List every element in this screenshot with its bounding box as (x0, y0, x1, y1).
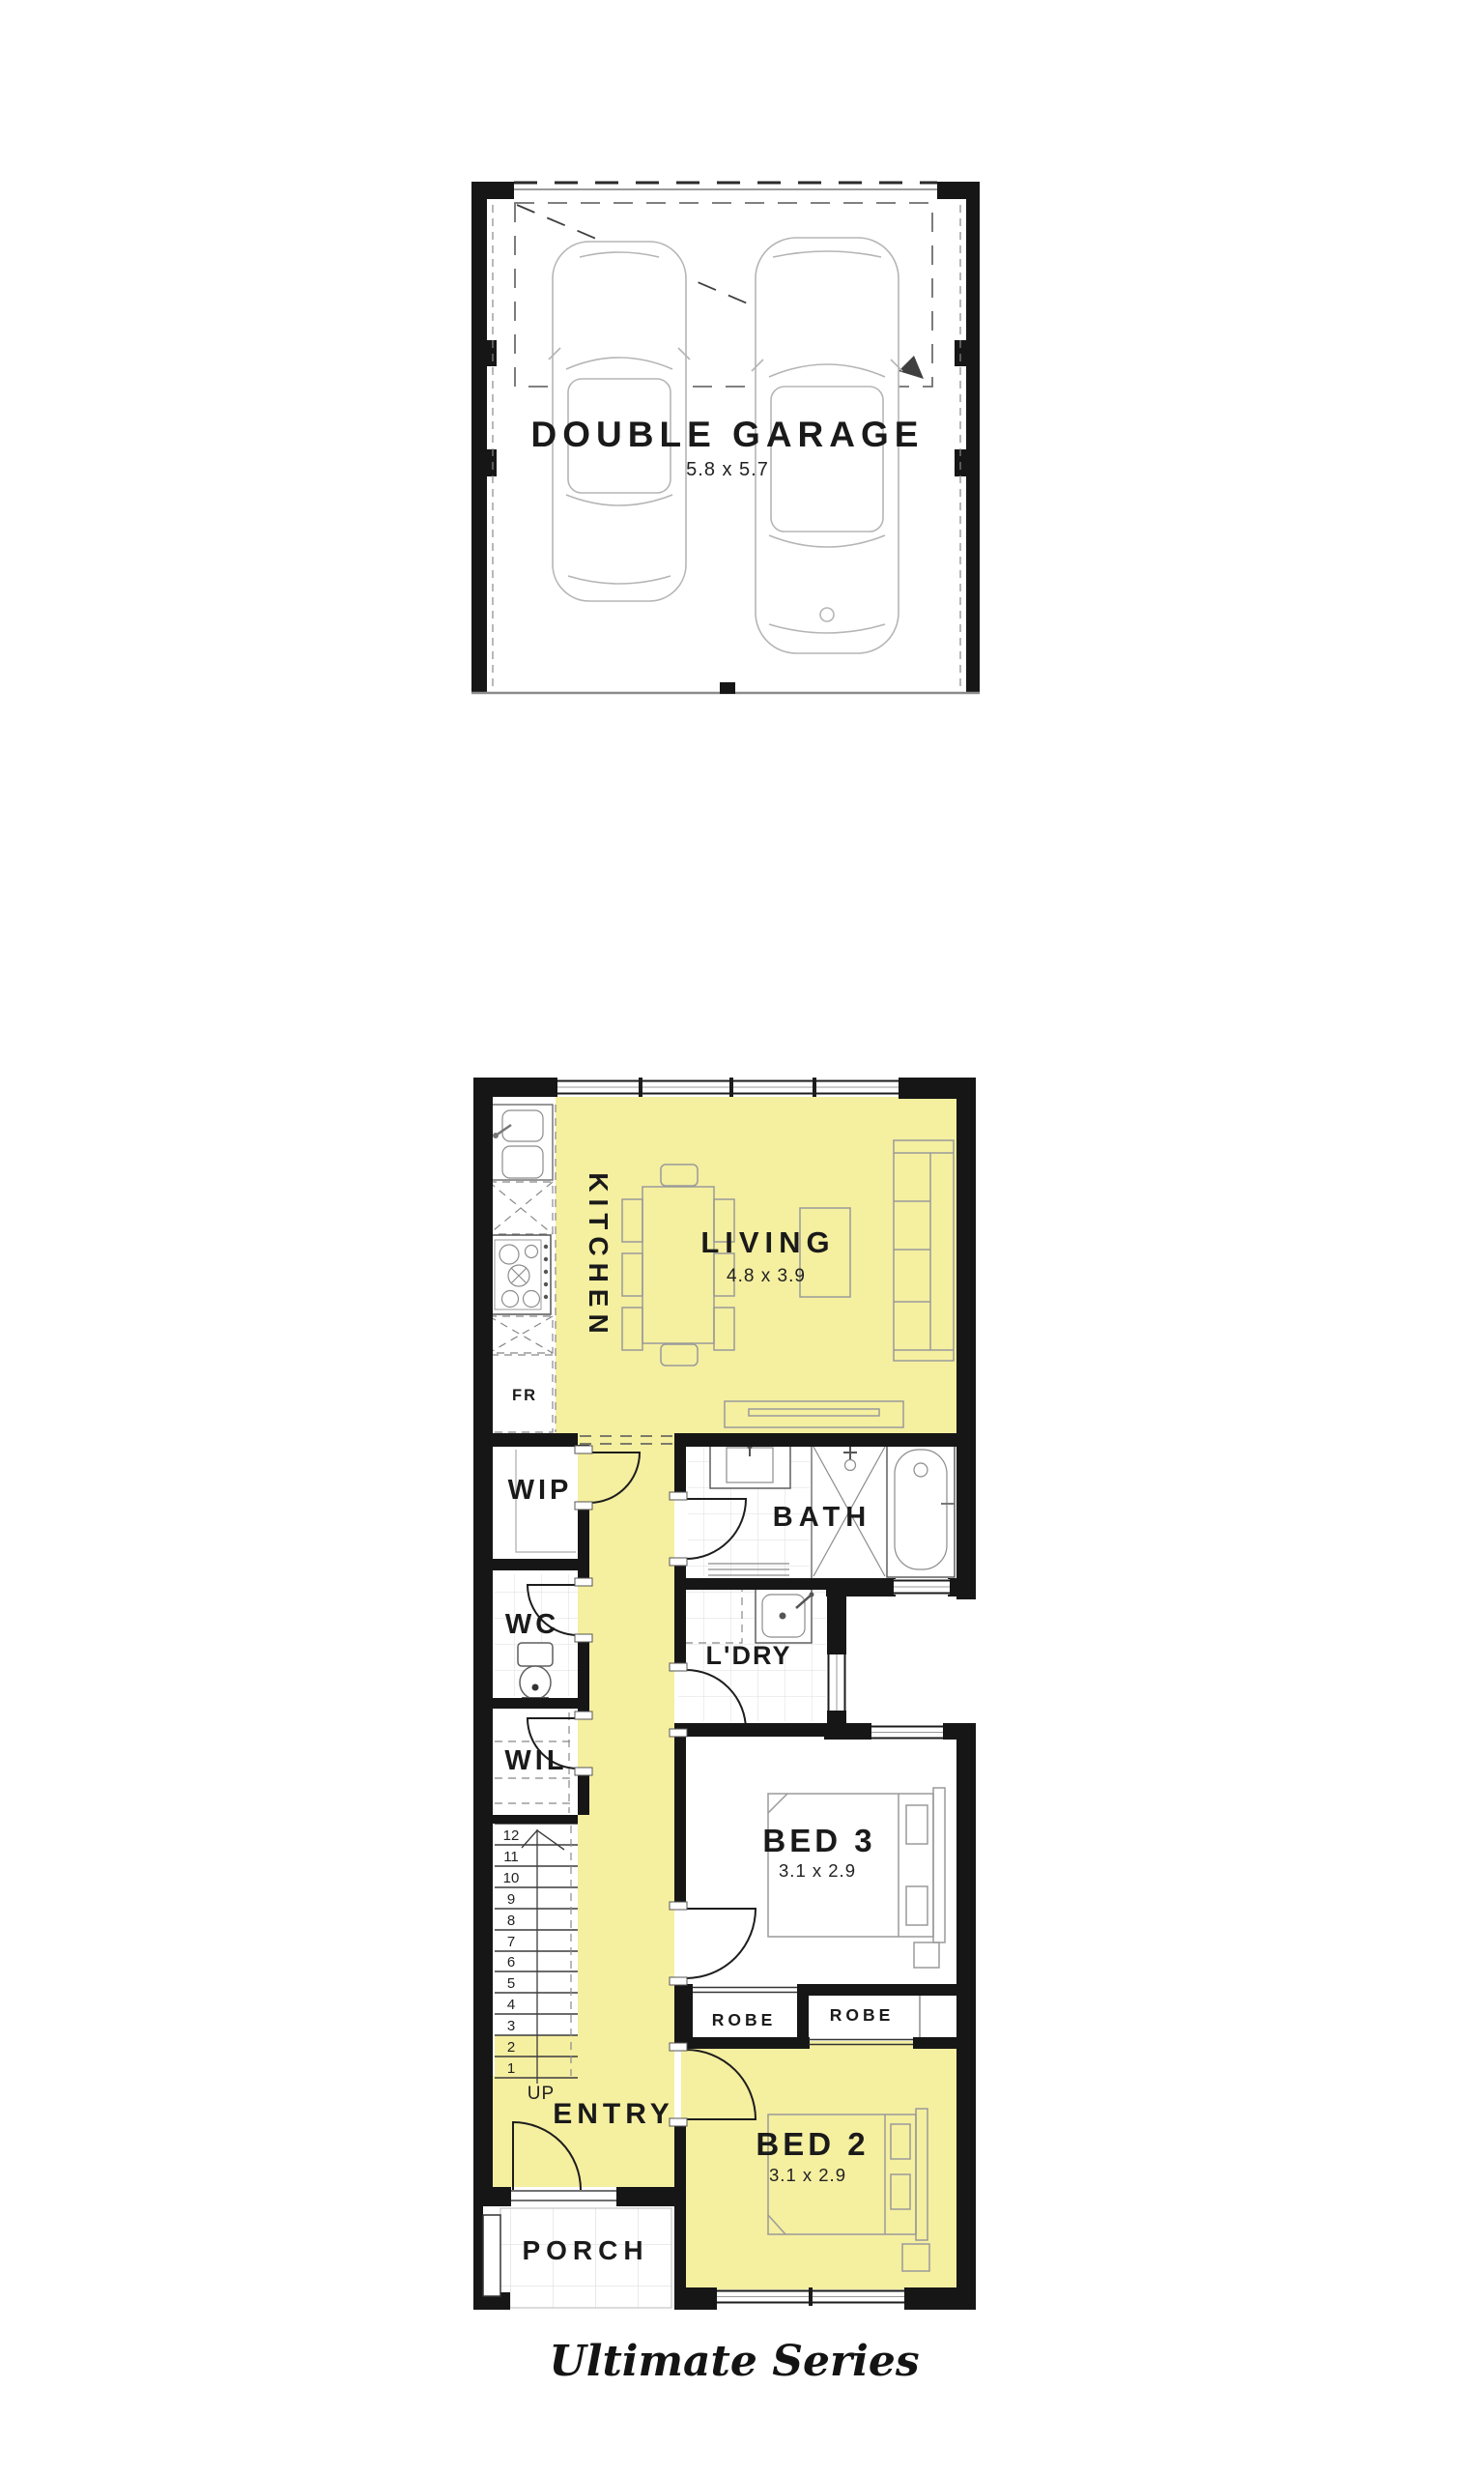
wall-segment (904, 2287, 976, 2310)
wall-segment (578, 1635, 589, 1718)
stair-step-number: 11 (503, 1849, 519, 1865)
wall-segment (473, 1433, 578, 1447)
wall-segment (674, 1730, 686, 1909)
entry-floor-highlight (493, 2076, 674, 2187)
living-dims: 4.8 x 3.9 (727, 1266, 806, 1286)
wall-segment (913, 2037, 976, 2049)
wall-segment (937, 182, 980, 199)
bed3-dims: 3.1 x 2.9 (779, 1860, 856, 1881)
porch-label: PORCH (522, 2235, 648, 2265)
bathtub-icon (887, 1442, 955, 1577)
ldry-label: L'DRY (706, 1641, 792, 1670)
hall-floor-highlight (578, 1433, 674, 2187)
wall-segment (485, 2187, 511, 2206)
stair-step-number: 2 (507, 2039, 515, 2056)
wall-segment (948, 1578, 976, 1597)
living-kitchen-floor-highlight (556, 1097, 956, 1433)
wall-segment (674, 2119, 686, 2187)
stair-step-number: 9 (507, 1891, 515, 1908)
bed2-window (717, 2287, 904, 2306)
floorplan-page: DOUBLE GARAGE 5.8 x 5.7 (0, 0, 1484, 2474)
wall-segment (966, 199, 980, 694)
wall-segment (674, 1447, 686, 1499)
living-window (557, 1078, 899, 1097)
stairs-up-label: UP (528, 2084, 555, 2104)
stair-step-number: 12 (503, 1827, 520, 1844)
wall-segment (471, 199, 487, 694)
stair-step-number: 3 (507, 2018, 515, 2034)
cooktop-icon (490, 1235, 551, 1314)
wall-segment (674, 1559, 686, 1670)
living-label: LIVING (700, 1225, 835, 1259)
bed2-label: BED 2 (756, 2126, 869, 2162)
kitchen-bench: FR (485, 1102, 556, 1433)
wall-segment (578, 1503, 589, 1585)
stair-step-number: 4 (507, 1997, 515, 2013)
porch-pier (483, 2215, 500, 2296)
wall-pier (955, 340, 980, 366)
wall-segment (674, 1578, 828, 1590)
fridge-label: FR (512, 1387, 537, 1404)
wil-label: WIL (504, 1745, 567, 1776)
robe-left-label: ROBE (712, 2010, 777, 2029)
wall-segment (616, 2187, 686, 2206)
stair-step-number: 5 (507, 1975, 515, 1992)
series-title: Ultimate Series (549, 2337, 919, 2386)
kitchen-label: KITCHEN (584, 1172, 614, 1339)
vanity-icon (710, 1442, 790, 1488)
stair-step-number: 8 (507, 1913, 515, 1929)
stair-step-number: 7 (507, 1934, 515, 1950)
wall-segment (797, 1984, 976, 1996)
bath-window (894, 1579, 950, 1595)
wall-segment (473, 1078, 493, 2206)
bed3-window (871, 1725, 943, 1740)
stair-step-number: 6 (507, 1954, 515, 1971)
stair-step-number: 1 (507, 2060, 515, 2077)
stair-step-number: 10 (503, 1870, 520, 1886)
wall-segment (824, 1723, 871, 1740)
laundry-trough-icon (756, 1588, 814, 1643)
wall-segment (674, 2037, 810, 2049)
wall-segment (826, 1578, 896, 1597)
robe-right-label: ROBE (830, 2005, 895, 2025)
floorplan-drawing: DOUBLE GARAGE 5.8 x 5.7 (0, 0, 1484, 2474)
garage-label: DOUBLE GARAGE (531, 415, 925, 454)
bath-label: BATH (773, 1502, 871, 1533)
wall-segment (473, 1078, 557, 1097)
wall-segment (485, 1559, 578, 1570)
bed2-dims: 3.1 x 2.9 (769, 2165, 846, 2185)
wc-label: WC (505, 1609, 559, 1640)
bed3-label: BED 3 (762, 1823, 875, 1858)
wall-segment (471, 182, 514, 199)
wall-pier (955, 449, 980, 476)
ldry-window (827, 1654, 846, 1711)
garage-dims: 5.8 x 5.7 (686, 459, 769, 480)
wall-segment (674, 1723, 829, 1737)
wall-segment (956, 1723, 976, 2310)
wip-label: WIP (508, 1475, 573, 1506)
wall-segment (485, 1698, 578, 1709)
wall-segment (485, 1815, 578, 1824)
garage-door-pier (720, 682, 735, 694)
wall-segment (956, 1078, 976, 1599)
wall-segment (674, 1433, 976, 1447)
wall-segment (674, 2287, 717, 2310)
entry-label: ENTRY (553, 2098, 674, 2130)
